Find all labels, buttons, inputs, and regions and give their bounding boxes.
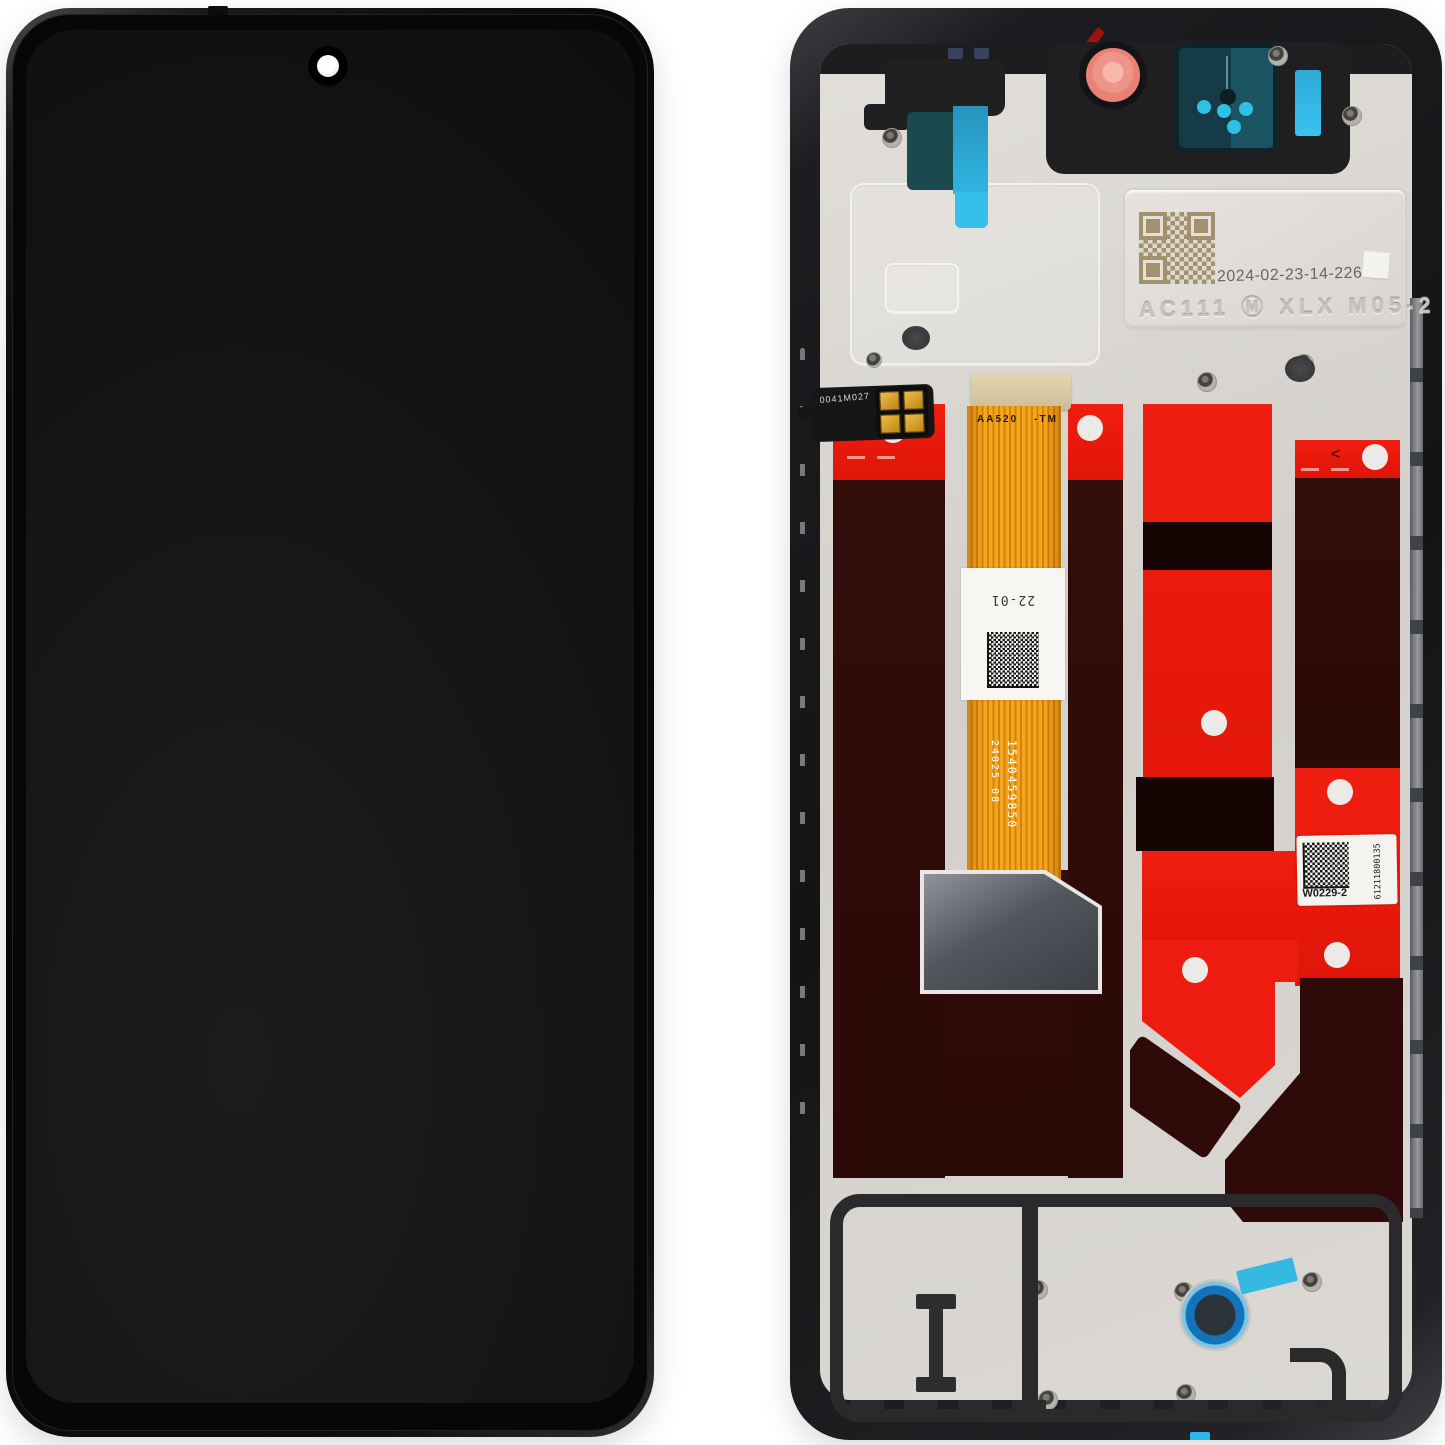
adhesive-black-band	[1143, 522, 1272, 570]
gold-contact-pads	[875, 386, 929, 438]
adhesive-dark-region	[1068, 478, 1123, 1178]
frame-clip	[948, 48, 963, 59]
screw-opening	[1077, 415, 1103, 441]
liner-mark	[1331, 468, 1349, 471]
sensor-flex-code: 0041M027	[819, 391, 870, 405]
sticker-cyan-dot	[1239, 102, 1253, 116]
adhesive-dark-region	[833, 478, 945, 1178]
camera-housing	[1046, 42, 1350, 174]
flex-code-right: -TM	[1034, 414, 1058, 425]
qr-label-plate: 2024-02-23-14-226 AC111 Ⓜ XLX M05-2	[1125, 190, 1405, 328]
flex-label-code: 22-01	[961, 592, 1065, 607]
gold-pad	[903, 390, 924, 410]
selfie-camera-sticker	[1175, 44, 1277, 152]
screw-hole	[1342, 106, 1362, 126]
screw-hole	[1268, 46, 1288, 66]
mic-foam-dot	[1285, 356, 1315, 382]
gold-pad	[880, 414, 901, 434]
i-mark-bar	[916, 1377, 956, 1392]
adhesive-dark-region	[1295, 478, 1400, 785]
gold-pad	[879, 391, 900, 411]
adhesive-black-band	[1136, 777, 1274, 851]
screw-opening	[1327, 779, 1353, 805]
qr-finder	[1139, 212, 1167, 240]
qr-code	[1139, 212, 1215, 284]
warranty-serial: 61211800135	[1372, 837, 1383, 899]
board-connector	[920, 870, 1102, 994]
screw-hole	[882, 128, 902, 148]
camera-opening	[1079, 41, 1147, 109]
adhesive-strip-red-2	[1068, 404, 1123, 480]
flex-serials: 24025 08 1540459850	[989, 740, 1019, 870]
bottom-gasket-divider	[1022, 1194, 1038, 1422]
bottom-frame-teeth	[850, 1400, 1382, 1416]
product-photo-canvas: 2024-02-23-14-226 AC111 Ⓜ XLX M05-2	[0, 0, 1445, 1445]
front-display-assembly	[6, 8, 654, 1437]
liner-cyan-part	[953, 106, 988, 194]
sticker-center-dot	[1220, 89, 1236, 105]
front-camera-punch-hole	[317, 55, 339, 77]
adhesive-strip-red-4: <	[1295, 440, 1400, 478]
left-edge-antenna-dashes	[800, 348, 805, 1128]
camera-gasket-pink	[1086, 48, 1140, 102]
liner-mark	[847, 456, 865, 459]
sticker-cyan-dot	[1227, 120, 1241, 134]
qr-finder	[1139, 256, 1167, 284]
i-mark-stem	[929, 1304, 943, 1382]
screw-opening	[1362, 444, 1388, 470]
date-code-label: 2024-02-23-14-226	[1217, 264, 1399, 287]
flex-code-left: AA520	[977, 414, 1018, 425]
sticker-cyan-dot	[1197, 100, 1211, 114]
flex-serial: 1540459850	[1005, 740, 1019, 870]
liner-arrow-mark: <	[1331, 446, 1340, 464]
sticker-line	[1226, 56, 1228, 92]
warranty-datamatrix	[1303, 842, 1350, 889]
bottom-cyan-tab	[1190, 1432, 1210, 1440]
board-connector-pad	[924, 874, 1098, 990]
embossed-part-code: AC111 Ⓜ XLX M05-2	[1139, 288, 1395, 324]
liner-mark	[877, 456, 895, 459]
flex-datamatrix	[987, 632, 1039, 688]
embossed-detail	[885, 263, 959, 313]
gold-pad	[904, 413, 925, 433]
screw-hole	[1197, 372, 1217, 392]
qr-finder	[1187, 212, 1215, 240]
liner-pull-tab	[955, 192, 988, 228]
main-flex-cable: AA520 -TM 22-01 24025 08 1540459850	[967, 406, 1061, 880]
i-mark	[916, 1294, 956, 1392]
flex-connector-code: AA520 -TM	[977, 414, 1058, 425]
warranty-code: W0229-2	[1302, 887, 1347, 900]
frame-top-notch	[208, 6, 228, 15]
frame-clip	[974, 48, 989, 59]
flex-batch: 24025 08	[989, 740, 1000, 870]
liner-mark	[1301, 468, 1319, 471]
mic-foam-dot	[902, 326, 930, 350]
sticker-cyan-dot	[1217, 104, 1231, 118]
sensor-flex-cable: 0041M027	[811, 384, 935, 442]
warranty-sticker: W0229-2 61211800135	[1296, 834, 1397, 906]
adhesive-strip-red-3-lower	[1142, 851, 1298, 948]
screw-opening	[1201, 710, 1227, 736]
front-screen	[26, 30, 634, 1403]
adhesive-liner-sticker-teal	[907, 104, 988, 194]
flex-label-sticker: 22-01	[961, 568, 1065, 700]
liner-dark-part	[907, 112, 955, 190]
back-frame-assembly: 2024-02-23-14-226 AC111 Ⓜ XLX M05-2	[790, 8, 1442, 1440]
flex-connector-tan	[971, 374, 1071, 410]
screw-hole	[866, 352, 882, 368]
camera-sticker-pull-tab	[1295, 70, 1321, 136]
top-plastic-blob-small	[864, 104, 910, 130]
